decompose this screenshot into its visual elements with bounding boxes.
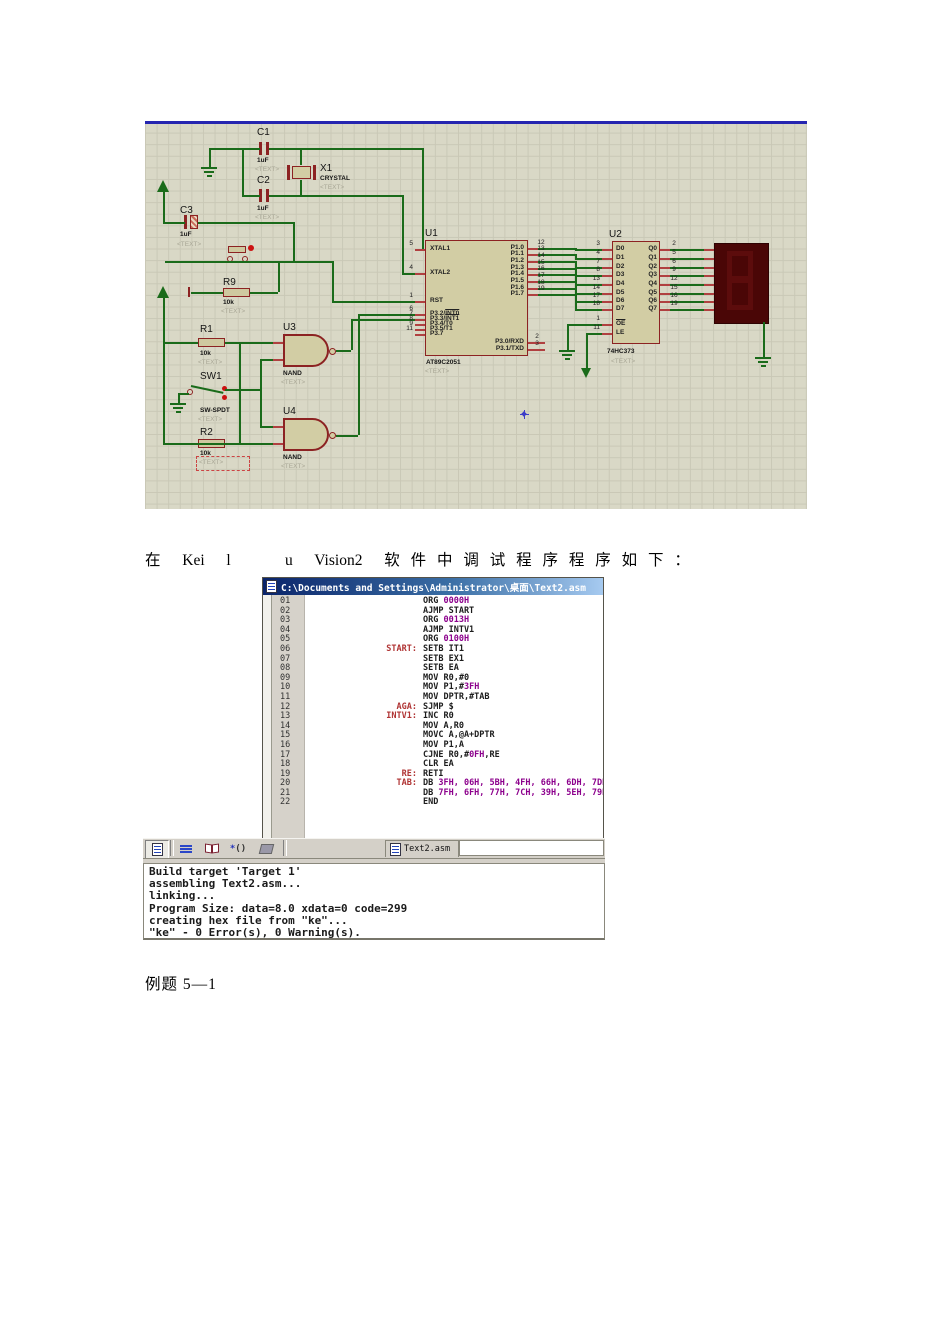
code-label: TAB: xyxy=(305,779,423,789)
chip-pin-stub xyxy=(704,258,714,260)
sw1-ref: SW1 xyxy=(200,371,222,382)
u3-value: NAND xyxy=(283,370,302,377)
templates-tab-icon xyxy=(258,844,273,854)
chip-pin-stub xyxy=(273,342,283,344)
c2-ref: C2 xyxy=(257,175,270,186)
u2-text: <TEXT> xyxy=(611,358,635,365)
u4-ref: U4 xyxy=(283,406,296,417)
pin-number: 11 xyxy=(582,324,600,331)
r9-text: <TEXT> xyxy=(221,308,245,315)
r1-body xyxy=(198,338,225,347)
chip-pin-label: D7 xyxy=(616,305,624,312)
chip-pin-label: Q7 xyxy=(632,305,657,312)
chip-pin-stub xyxy=(602,301,612,303)
caption-text: 在 Kei l u Vision2 软 件 中 调 试 程 序 程 序 如 下 … xyxy=(145,548,690,570)
chip-pin-stub xyxy=(602,267,612,269)
chip-pin-stub xyxy=(704,284,714,286)
wire xyxy=(293,222,295,261)
x1-terminal xyxy=(287,165,290,180)
file-tab-document-icon xyxy=(390,843,401,856)
chip-pin-stub xyxy=(415,249,425,251)
chip-pin-stub xyxy=(602,324,612,326)
chip-pin-stub xyxy=(415,301,425,303)
x1-body xyxy=(292,166,311,179)
file-tab-text2asm[interactable]: Text2.asm xyxy=(385,840,459,857)
pin-number: 5 xyxy=(665,249,683,256)
toolbar-separator xyxy=(170,840,174,856)
templates-tab-button[interactable] xyxy=(255,840,277,857)
chip-pin-label: P3.7 xyxy=(430,330,443,337)
chip-pin-stub xyxy=(273,426,283,428)
pin-number: 2 xyxy=(665,240,683,247)
wire xyxy=(567,324,569,350)
wire xyxy=(586,333,588,368)
circuit-schematic: C1 1uF <TEXT> C2 1uF <TEXT> X1 CRYSTAL <… xyxy=(145,121,807,509)
display-digit-segment xyxy=(727,251,753,281)
r1-ref: R1 xyxy=(200,324,213,335)
books-tab-button[interactable] xyxy=(201,840,223,857)
pin-number: 3 xyxy=(530,340,544,347)
wire xyxy=(575,254,577,258)
pin-number: 14 xyxy=(582,284,600,291)
c3-text: <TEXT> xyxy=(177,241,201,248)
build-output-line: linking... xyxy=(149,890,604,902)
wire xyxy=(358,314,360,435)
files-tab-button[interactable] xyxy=(145,840,169,859)
chip-pin-stub xyxy=(704,267,714,269)
code-line: CJNE R0,#0FH,RE xyxy=(305,751,603,761)
wire xyxy=(332,301,415,303)
wire xyxy=(163,443,273,445)
code-label: START: xyxy=(305,645,423,655)
pin-number: 4 xyxy=(582,249,600,256)
wire xyxy=(300,180,302,195)
r9-body xyxy=(223,288,250,297)
code-line: DB 7FH, 6FH, 77H, 7CH, 39H, 5EH, 79H, 71… xyxy=(305,789,603,799)
wire xyxy=(402,195,404,273)
r2-text: <TEXT> xyxy=(199,459,223,466)
pin-number: 3 xyxy=(582,240,600,247)
cursor-crosshair-icon xyxy=(520,410,529,419)
chip-pin-stub xyxy=(602,309,612,311)
wire xyxy=(191,292,223,294)
wire xyxy=(269,195,402,197)
pin-number: 13 xyxy=(582,275,600,282)
wire xyxy=(269,148,422,150)
wire xyxy=(763,322,765,357)
x1-text: <TEXT> xyxy=(320,184,344,191)
pin-number: 16 xyxy=(533,265,549,272)
wire xyxy=(336,435,358,437)
c1-text: <TEXT> xyxy=(255,166,279,173)
registers-tab-button[interactable] xyxy=(175,840,197,857)
c1-ref: C1 xyxy=(257,127,270,138)
wire xyxy=(178,393,189,395)
sw1-value: SW-SPDT xyxy=(200,407,230,414)
code-line: AGA:SJMP $ xyxy=(305,703,603,713)
u4-value: NAND xyxy=(283,454,302,461)
r1-text: <TEXT> xyxy=(198,359,222,366)
r9-value: 10k xyxy=(223,299,234,306)
pin-number: 4 xyxy=(393,264,413,271)
wire xyxy=(336,350,351,352)
c2-text: <TEXT> xyxy=(255,214,279,221)
registers-tab-icon xyxy=(180,844,192,854)
build-output-line: "ke" - 0 Error(s), 0 Warning(s). xyxy=(149,927,604,939)
chip-pin-stub xyxy=(602,258,612,260)
x1-value: CRYSTAL xyxy=(320,175,350,182)
x1-terminal xyxy=(313,165,316,180)
pin-number: 6 xyxy=(665,258,683,265)
u4-text: <TEXT> xyxy=(281,463,305,470)
chip-pin-label: P1.7 xyxy=(443,290,524,297)
chip-pin-stub xyxy=(415,324,425,326)
wire xyxy=(209,148,211,167)
pin-number: 14 xyxy=(533,252,549,259)
ground-arrow-icon xyxy=(581,368,591,378)
line-number: 22 xyxy=(272,798,304,808)
chip-pin-stub xyxy=(528,349,545,351)
file-tab-label: Text2.asm xyxy=(404,844,450,854)
pin-number: 18 xyxy=(582,300,600,307)
wire xyxy=(209,148,260,150)
c1-value: 1uF xyxy=(257,157,269,164)
chip-pin-label: D6 xyxy=(616,297,624,304)
example-label: 例题 5—1 xyxy=(145,972,217,994)
wire xyxy=(538,294,575,296)
x1-ref: X1 xyxy=(320,163,332,174)
editor-title: C:\Documents and Settings\Administrator\… xyxy=(281,580,586,594)
ground-icon xyxy=(170,403,186,413)
u1-part: AT89C2051 xyxy=(426,359,461,366)
wire xyxy=(239,342,241,443)
line-number-gutter: 0102030405060708091011121314151617181920… xyxy=(272,595,305,845)
chip-pin-stub xyxy=(704,275,714,277)
sw1-text: <TEXT> xyxy=(198,416,222,423)
pin-number: 5 xyxy=(393,240,413,247)
pin-number: 8 xyxy=(582,266,600,273)
wire xyxy=(351,319,353,350)
pin-number: 1 xyxy=(393,292,413,299)
wire xyxy=(225,342,273,344)
code-label: INTV1: xyxy=(305,712,423,722)
pushbutton-cap xyxy=(228,246,246,253)
r9-terminal xyxy=(188,287,190,297)
build-output-line: assembling Text2.asm... xyxy=(149,878,604,890)
chip-pin-label: Q2 xyxy=(632,263,657,270)
ground-icon xyxy=(559,350,575,360)
sw1-throw-dot xyxy=(222,395,227,400)
chip-pin-stub xyxy=(415,329,425,331)
build-output-line: Program Size: data=8.0 xdata=0 code=299 xyxy=(149,903,604,915)
wire xyxy=(165,261,332,263)
wire xyxy=(332,261,334,301)
empty-tab-strip xyxy=(459,840,604,856)
u2-part: 74HC373 xyxy=(607,348,634,355)
chip-pin-label: Q4 xyxy=(632,280,657,287)
chip-pin-label: D2 xyxy=(616,263,624,270)
wire xyxy=(422,148,424,249)
ground-icon xyxy=(755,357,771,367)
chip-pin-stub xyxy=(273,443,283,445)
u3-text: <TEXT> xyxy=(281,379,305,386)
schematic-top-border xyxy=(145,121,807,124)
u4-nand-gate xyxy=(283,418,329,451)
u3-output-bubble xyxy=(329,348,336,355)
power-arrow-icon xyxy=(157,286,169,298)
code-editor-area[interactable]: ORG 0000HAJMP STARTORG 0013HAJMP INTV1OR… xyxy=(305,595,603,845)
chip-pin-label: Q0 xyxy=(632,245,657,252)
wire xyxy=(250,292,278,294)
toolbar-separator xyxy=(283,840,287,856)
chip-pin-label: Q1 xyxy=(632,254,657,261)
pin-number: 2 xyxy=(530,333,544,340)
wire xyxy=(278,261,280,292)
chip-pin-stub xyxy=(704,309,714,311)
chip-pin-stub xyxy=(415,334,425,336)
display-digit-segment xyxy=(727,278,753,310)
sw1-arm xyxy=(191,385,224,394)
u2-ref: U2 xyxy=(609,229,622,240)
chip-pin-label: RST xyxy=(430,297,443,304)
wire xyxy=(260,426,273,428)
u1-text: <TEXT> xyxy=(425,368,449,375)
chip-pin-label: D5 xyxy=(616,289,624,296)
wire xyxy=(163,192,165,222)
chip-pin-stub xyxy=(528,294,538,296)
pin-number: 16 xyxy=(665,292,683,299)
ground-icon xyxy=(201,167,217,177)
wire xyxy=(260,359,262,426)
chip-pin-stub xyxy=(602,293,612,295)
chip-pin-label: P3.1/TXD xyxy=(443,345,524,352)
chip-pin-stub xyxy=(660,309,670,311)
chip-pin-stub xyxy=(602,333,612,335)
wire xyxy=(242,195,260,197)
r9-ref: R9 xyxy=(223,277,236,288)
pin-number: 7 xyxy=(582,258,600,265)
chip-pin-label: D3 xyxy=(616,271,624,278)
c3-plate-hatched xyxy=(190,215,198,229)
pin-number: 17 xyxy=(582,292,600,299)
chip-pin-label: Q3 xyxy=(632,271,657,278)
c3-value: 1uF xyxy=(180,231,192,238)
chip-pin-label: OE xyxy=(616,320,625,327)
chip-pin-stub xyxy=(415,319,425,321)
pin-number: 19 xyxy=(665,300,683,307)
chip-pin-label: P3.0/RXD xyxy=(443,338,524,345)
functions-tab-icon: *() xyxy=(230,844,246,854)
wire xyxy=(242,148,244,195)
pin-number: 19 xyxy=(533,285,549,292)
pin-number: 17 xyxy=(533,272,549,279)
wire xyxy=(402,273,416,275)
chip-pin-label: Q6 xyxy=(632,297,657,304)
chip-pin-label: P1.1 xyxy=(443,250,524,257)
wire xyxy=(575,309,602,311)
books-tab-icon xyxy=(205,844,219,853)
r1-value: 10k xyxy=(200,350,211,357)
pin-number: 1 xyxy=(582,315,600,322)
functions-tab-button[interactable]: *() xyxy=(227,840,249,857)
pin-number: 11 xyxy=(393,325,413,332)
files-tab-icon xyxy=(152,843,163,856)
u4-output-bubble xyxy=(329,432,336,439)
pin-number: 12 xyxy=(665,275,683,282)
chip-pin-label: LE xyxy=(616,329,624,336)
chip-pin-label: D0 xyxy=(616,245,624,252)
wire xyxy=(163,222,185,224)
power-arrow-icon xyxy=(157,180,169,192)
code-line: MOV DPTR,#TAB xyxy=(305,693,603,703)
chip-pin-stub xyxy=(273,359,283,361)
wire xyxy=(670,309,704,311)
chip-pin-label: Q5 xyxy=(632,289,657,296)
r2-ref: R2 xyxy=(200,427,213,438)
chip-pin-stub xyxy=(704,293,714,295)
u3-nand-gate xyxy=(283,334,329,367)
editor-bottom-bar: *() Text2.asm xyxy=(143,838,605,859)
keil-editor-window: C:\Documents and Settings\Administrator\… xyxy=(262,577,604,846)
c2-value: 1uF xyxy=(257,205,269,212)
wire xyxy=(586,333,603,335)
chip-pin-stub xyxy=(602,275,612,277)
chip-pin-label: D4 xyxy=(616,280,624,287)
wire xyxy=(198,222,293,224)
editor-left-strip xyxy=(263,595,272,845)
wire xyxy=(300,148,302,165)
document-page: C1 1uF <TEXT> C2 1uF <TEXT> X1 CRYSTAL <… xyxy=(0,0,950,1344)
chip-pin-label: P1.5 xyxy=(443,277,524,284)
chip-pin-stub xyxy=(415,314,425,316)
pin-number: 9 xyxy=(665,266,683,273)
chip-pin-label: D1 xyxy=(616,254,624,261)
u3-ref: U3 xyxy=(283,322,296,333)
document-icon xyxy=(266,580,277,593)
chip-pin-stub xyxy=(602,249,612,251)
code-line: CLR EA xyxy=(305,760,603,770)
build-output-window: Build target 'Target 1'assembling Text2.… xyxy=(143,863,605,940)
u1-ref: U1 xyxy=(425,228,438,239)
chip-pin-stub xyxy=(704,249,714,251)
wire xyxy=(260,359,273,361)
chip-pin-stub xyxy=(415,273,425,275)
chip-pin-stub xyxy=(602,284,612,286)
chip-pin-stub xyxy=(704,301,714,303)
chip-pin-label: P1.2 xyxy=(443,257,524,264)
wire xyxy=(163,342,198,344)
pin-number: 15 xyxy=(665,284,683,291)
wire xyxy=(163,298,165,443)
wire xyxy=(575,248,577,249)
pushbutton-indicator-dot xyxy=(248,245,254,251)
wire xyxy=(575,261,577,267)
editor-title-bar: C:\Documents and Settings\Administrator\… xyxy=(263,578,603,595)
pin-number: 13 xyxy=(533,245,549,252)
chip-pin-label: P1.4 xyxy=(443,270,524,277)
code-line: END xyxy=(305,798,603,808)
wire xyxy=(225,389,260,391)
wire xyxy=(575,294,577,309)
seven-segment-display xyxy=(714,243,769,324)
